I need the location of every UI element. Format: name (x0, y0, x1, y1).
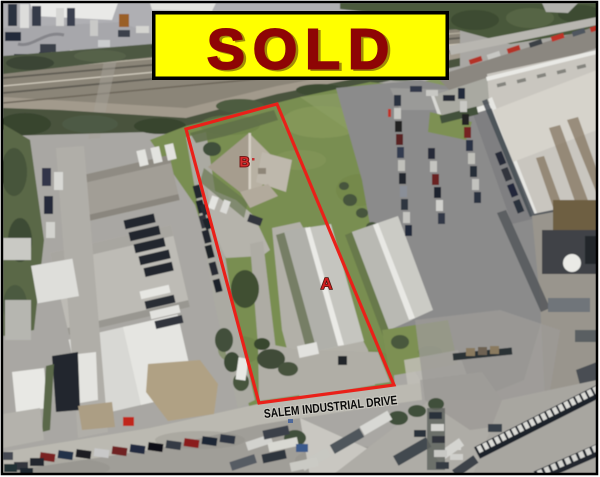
svg-text:B: B (239, 154, 249, 170)
svg-text:A: A (321, 276, 333, 293)
svg-text:SOLD: SOLD (207, 18, 397, 82)
